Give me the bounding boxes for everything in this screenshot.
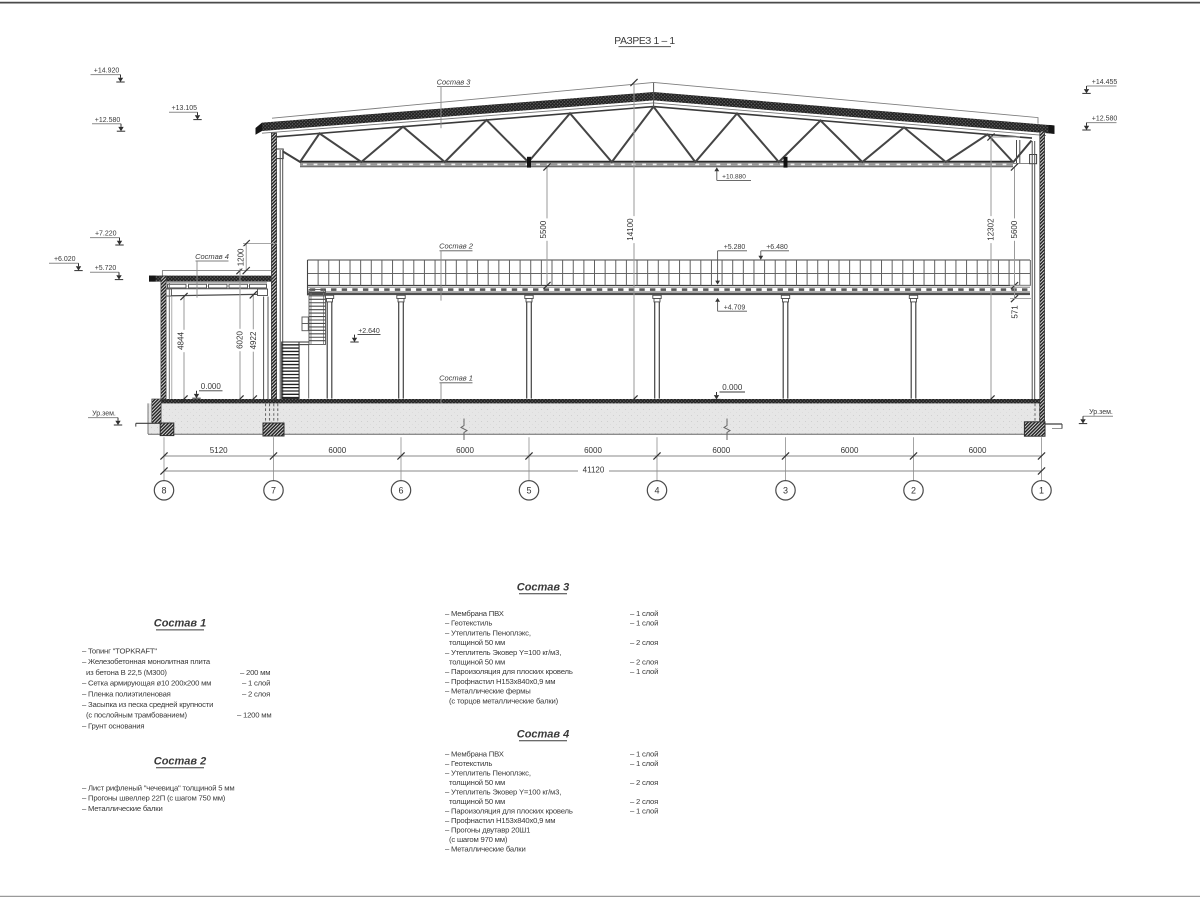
svg-text:+13.105: +13.105 [172,105,198,112]
svg-text:– 1 слой: – 1 слой [630,759,658,768]
svg-text:5500: 5500 [539,220,548,238]
svg-text:толщиной 50 мм: толщиной 50 мм [449,778,505,787]
svg-text:2: 2 [911,486,916,496]
svg-text:+12.580: +12.580 [95,117,121,124]
svg-text:6020: 6020 [236,331,245,349]
svg-text:– Утеплитель Эковер Y=100 кг/м: – Утеплитель Эковер Y=100 кг/м3, [445,648,561,657]
svg-text:– Железобетонная монолитная п: – Железобетонная монолитная плита [82,657,211,666]
svg-text:– Мембрана ПВХ: – Мембрана ПВХ [445,750,504,759]
svg-text:+7.220: +7.220 [95,231,117,238]
svg-text:толщиной 50 мм: толщиной 50 мм [449,658,505,667]
svg-text:толщиной 50 мм: толщиной 50 мм [449,638,505,647]
svg-text:+2.640: +2.640 [358,328,380,335]
svg-text:– Профнастил Н153х840х0,9 мм: – Профнастил Н153х840х0,9 мм [445,816,555,825]
svg-text:– Засыпка из песка средней кру: – Засыпка из песка средней крупности [82,700,213,709]
svg-text:– 1 слой: – 1 слой [630,667,658,676]
svg-text:Состав 4: Состав 4 [195,252,229,261]
svg-text:+6.480: +6.480 [766,244,788,251]
svg-text:4: 4 [654,486,659,496]
svg-text:14100: 14100 [626,218,635,241]
svg-text:– Утеплитель Пеноплэкс,: – Утеплитель Пеноплэкс, [445,769,531,778]
svg-text:– Металлические фермы: – Металлические фермы [445,687,531,696]
svg-text:– 1 слой: – 1 слой [242,679,270,688]
svg-text:– Геотекстиль: – Геотекстиль [445,619,492,628]
svg-text:(с послойным трамбованием): (с послойным трамбованием) [86,711,187,720]
svg-text:(с шагом 970 мм): (с шагом 970 мм) [449,835,508,844]
svg-text:6000: 6000 [841,446,859,455]
svg-text:Состав 1: Состав 1 [154,618,207,630]
svg-text:– Пароизоляция для плоских кро: – Пароизоляция для плоских кровель [445,667,573,676]
svg-text:– 200 мм: – 200 мм [240,668,270,677]
svg-text:Состав 1: Состав 1 [439,374,473,383]
svg-text:– Пленка полиэтиленовая: – Пленка полиэтиленовая [82,689,171,698]
svg-text:– 1 слой: – 1 слой [630,750,658,759]
svg-text:3: 3 [783,486,788,496]
svg-text:Ур.зем.: Ур.зем. [1089,409,1113,416]
svg-text:Ур.зем.: Ур.зем. [92,411,116,418]
svg-text:– Мембрана ПВХ: – Мембрана ПВХ [445,609,504,618]
svg-text:– Грунт основания: – Грунт основания [82,721,144,730]
svg-text:– 2 слоя: – 2 слоя [630,797,658,806]
svg-text:5120: 5120 [210,446,228,455]
svg-text:из бетона В 22,5 (М300): из бетона В 22,5 (М300) [86,668,167,677]
svg-text:4922: 4922 [249,331,258,349]
svg-text:0.000: 0.000 [201,382,222,391]
svg-text:– Пароизоляция для плоских кро: – Пароизоляция для плоских кровель [445,807,573,816]
svg-text:6000: 6000 [456,446,474,455]
svg-text:1200: 1200 [237,248,246,266]
svg-text:+5.280: +5.280 [724,244,746,251]
svg-text:– Металлические балки: – Металлические балки [82,804,163,813]
svg-text:6000: 6000 [969,446,987,455]
svg-text:– 1 слой: – 1 слой [630,609,658,618]
svg-text:+6.020: +6.020 [54,256,76,263]
svg-text:Состав 2: Состав 2 [439,242,474,251]
svg-text:– 1200 мм: – 1200 мм [237,711,271,720]
svg-text:6000: 6000 [584,446,602,455]
svg-text:толщиной 50 мм: толщиной 50 мм [449,797,505,806]
svg-text:– Прогоны двутавр 20Ш1: – Прогоны двутавр 20Ш1 [445,826,530,835]
svg-text:Состав 3: Состав 3 [517,581,570,593]
svg-text:– 2 слоя: – 2 слоя [242,689,270,698]
svg-text:41120: 41120 [583,466,605,475]
svg-text:– Геотекстиль: – Геотекстиль [445,759,492,768]
svg-text:– 2 слоя: – 2 слоя [630,778,658,787]
svg-text:4844: 4844 [177,332,186,350]
svg-text:РАЗРЕЗ 1 – 1: РАЗРЕЗ 1 – 1 [614,36,675,47]
svg-text:– Прогоны швеллер 22П (с шагом: – Прогоны швеллер 22П (с шагом 750 мм) [82,794,226,803]
svg-text:7: 7 [271,486,276,496]
svg-text:571: 571 [1010,305,1019,319]
svg-text:6000: 6000 [712,446,730,455]
svg-text:+4.709: +4.709 [724,304,746,311]
svg-text:– Утеплитель Эковер Y=100 кг/м: – Утеплитель Эковер Y=100 кг/м3, [445,788,561,797]
svg-text:1: 1 [1039,486,1044,496]
svg-text:Состав 3: Состав 3 [437,77,472,86]
svg-text:– 2 слоя: – 2 слоя [630,658,658,667]
svg-text:6: 6 [398,486,403,496]
svg-text:+5.720: +5.720 [95,265,117,272]
svg-text:Состав 4: Состав 4 [517,728,570,740]
svg-text:– 1 слой: – 1 слой [630,619,658,628]
svg-text:– Металлические балки: – Металлические балки [445,845,526,854]
svg-text:12302: 12302 [987,218,996,241]
svg-text:– Профнастил Н153х840х0,9 мм: – Профнастил Н153х840х0,9 мм [445,677,555,686]
svg-text:+12.580: +12.580 [1092,116,1118,123]
svg-text:Состав 2: Состав 2 [154,755,207,767]
svg-text:8: 8 [161,486,166,496]
svg-text:5: 5 [526,486,531,496]
svg-text:+14.920: +14.920 [94,68,120,75]
svg-text:+14.455: +14.455 [1092,79,1118,86]
svg-text:(с торцов металлические балки): (с торцов металлические балки) [449,696,559,705]
svg-text:– 2 слоя: – 2 слоя [630,638,658,647]
svg-text:+10.880: +10.880 [722,174,746,181]
svg-text:– Утеплитель Пеноплэкс,: – Утеплитель Пеноплэкс, [445,628,531,637]
svg-text:– Лист рифленый "чечевица" тол: – Лист рифленый "чечевица" толщиной 5 мм [82,784,234,793]
svg-text:– Сетка армирующая ø10 200х200: – Сетка армирующая ø10 200х200 мм [82,679,211,688]
svg-text:– 1 слой: – 1 слой [630,807,658,816]
svg-text:0.000: 0.000 [722,383,743,392]
svg-text:5600: 5600 [1010,220,1019,238]
svg-text:– Топинг "TOPKRAFT": – Топинг "TOPKRAFT" [82,647,157,656]
svg-text:6000: 6000 [328,446,346,455]
